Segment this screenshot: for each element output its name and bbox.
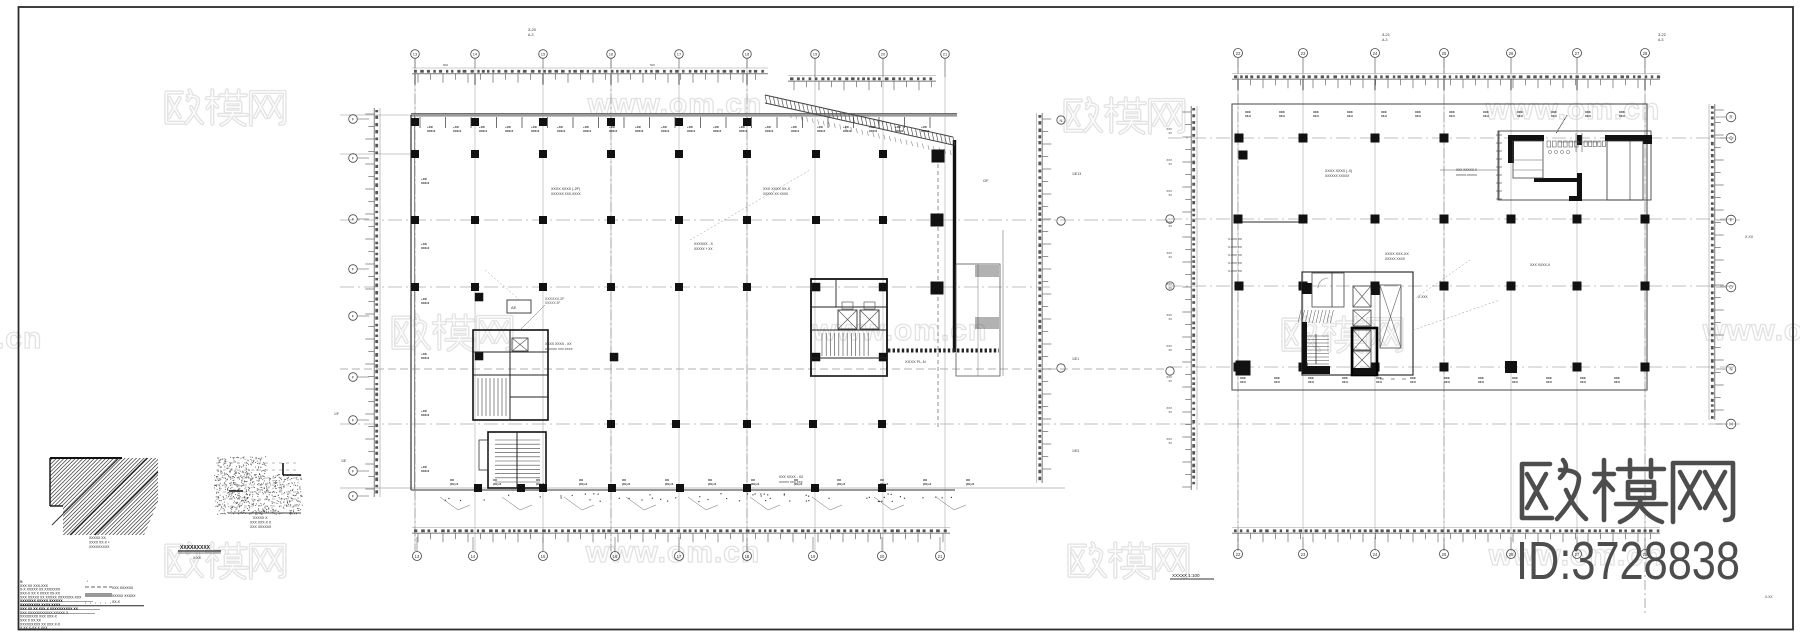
svg-text:XXX.X: XXX.X (421, 356, 429, 360)
svg-text:14: 14 (473, 52, 478, 57)
svg-text:XXX.X: XXX.X (895, 129, 903, 133)
svg-text:XX: XX (1169, 286, 1173, 290)
svg-text:XXX.X: XXX.X (557, 129, 565, 133)
svg-text:15: 15 (541, 554, 546, 559)
svg-text:XX: XX (1169, 348, 1173, 352)
svg-text:(XL)-X: (XL)-X (837, 482, 845, 486)
svg-text:X-XXX XX: X-XXX XX (1228, 245, 1242, 249)
svg-text:XXX.X: XXX.X (687, 129, 695, 133)
svg-text:XXX.X: XXX.X (421, 246, 429, 250)
svg-text:(XL)-X: (XL)-X (923, 482, 931, 486)
svg-text:XXX: XXX (1614, 376, 1620, 380)
svg-text:M: M (1729, 422, 1733, 427)
svg-text:1/E1: 1/E1 (1072, 357, 1079, 361)
svg-text:XXXXX X: XXXXX X (253, 516, 268, 520)
svg-text:(XL)-X: (XL)-X (622, 482, 630, 486)
svg-text:XX: XX (1169, 379, 1173, 383)
svg-text:(XL)-X: (XL)-X (536, 482, 544, 486)
svg-text:16: 16 (609, 52, 614, 57)
svg-text:XX: XX (1169, 255, 1173, 259)
svg-text:XX.X: XX.X (1444, 380, 1450, 384)
svg-text:3-20: 3-20 (528, 27, 537, 32)
svg-text:(XL)-X: (XL)-X (751, 482, 759, 486)
svg-text:XXX.X: XXX.X (505, 129, 513, 133)
svg-text:X-XXX XX: X-XXX XX (1228, 237, 1242, 241)
svg-text:XXXXX-XXXXX: XXXXX-XXXXX (1456, 173, 1477, 177)
svg-text:X-XXX XX: X-XXX XX (1228, 261, 1242, 265)
svg-text:16: 16 (613, 554, 618, 559)
svg-text:XX.X: XX.X (1342, 380, 1348, 384)
svg-text:XXX.X: XXX.X (583, 129, 591, 133)
svg-text:18: 18 (745, 52, 750, 57)
svg-text:XXX: XXX (1512, 376, 1518, 380)
svg-text:XX: XX (1169, 224, 1173, 228)
svg-text:XXX: XXX (1580, 376, 1586, 380)
svg-text:(XL)-X: (XL)-X (665, 482, 673, 486)
svg-text:XX.X: XX.X (1619, 114, 1625, 118)
svg-text:XXX: XXX (1619, 110, 1625, 114)
svg-text:XXXXXX XXXXX: XXXXXX XXXXX (1325, 174, 1350, 178)
svg-text:XXX: XXX (1166, 406, 1172, 410)
svg-text:XXX: XXX (1166, 282, 1172, 286)
svg-text:21: 21 (938, 554, 943, 559)
svg-text:(XL)-X: (XL)-X (708, 482, 716, 486)
svg-text:XXX: XXX (1376, 376, 1382, 380)
svg-text:XXXXX 2F: XXXXX 2F (545, 301, 560, 305)
svg-text:XXX.X: XXX.X (817, 129, 825, 133)
svg-text:XXX: XXX (1274, 376, 1280, 380)
svg-text:AE: AE (511, 305, 517, 310)
svg-text:3-22: 3-22 (1658, 32, 1667, 37)
svg-text:20: 20 (880, 554, 885, 559)
svg-text:17: 17 (677, 52, 682, 57)
svg-text:X-XXX XX: X-XXX XX (1228, 269, 1242, 273)
svg-text:X XX X-XX X XXX: X XX X-XX X XXX (20, 626, 48, 630)
svg-text:XXX.X: XXX.X (739, 129, 747, 133)
svg-text:XX.X: XX.X (1313, 114, 1319, 118)
svg-text:1/F: 1/F (334, 412, 339, 416)
svg-text:XXX: XXX (1166, 158, 1172, 162)
svg-text:XXX: XXX (1381, 110, 1387, 114)
svg-text:XXXXXXXXX: XXXXXXXXX (89, 545, 110, 549)
svg-text:XXX: XXX (1415, 110, 1421, 114)
svg-text:XXX.X: XXX.X (421, 469, 429, 473)
svg-text:XXXXXXXXX: XXXXXXXXX (180, 545, 211, 551)
svg-text:XXX: XXX (1483, 110, 1489, 114)
svg-text:XX: XX (1391, 377, 1395, 381)
svg-text:XXX.X: XXX.X (713, 129, 721, 133)
svg-text:X-XX: X-XX (1765, 595, 1773, 599)
svg-text:XXX: XXX (1449, 110, 1455, 114)
svg-text:XXX: XXX (1410, 376, 1416, 380)
svg-text:GF: GF (983, 178, 989, 183)
svg-text:XXXXX + XX: XXXXX + XX (694, 247, 713, 251)
svg-text:XXX: XXX (1279, 110, 1285, 114)
svg-text:XXX: XXX (1166, 220, 1172, 224)
svg-text:XXX: XXX (1166, 127, 1172, 131)
svg-text:XXX: XXX (1478, 376, 1484, 380)
svg-text:XXXX XXXX - XX: XXXX XXXX - XX (545, 342, 572, 346)
svg-text:XXXXXX XXX XXXX: XXXXXX XXX XXXX (545, 347, 573, 351)
svg-text:XX.X: XX.X (1279, 114, 1285, 118)
svg-text:XXX: XXX (1166, 313, 1172, 317)
svg-text:22: 22 (1236, 552, 1241, 557)
svg-text:500: 500 (650, 63, 655, 67)
svg-text:13: 13 (415, 554, 420, 559)
svg-text:17: 17 (677, 554, 682, 559)
svg-text:N: N (1060, 118, 1063, 123)
svg-text:XXX.X: XXX.X (791, 129, 799, 133)
svg-text:XXX: XXX (1308, 376, 1314, 380)
svg-text:www.om.cn: www.om.cn (1702, 314, 1800, 347)
svg-text:XX.X: XX.X (1483, 114, 1489, 118)
svg-text:X-XX: X-XX (1745, 235, 1754, 239)
svg-text:XXXX XXXX (-X): XXXX XXXX (-X) (1325, 169, 1352, 173)
svg-text:XXXX XXXX (-2F): XXXX XXXX (-2F) (551, 187, 580, 191)
svg-text:N: N (1729, 367, 1732, 372)
svg-text:(XL)-X: (XL)-X (450, 482, 458, 486)
svg-text:XXX: XXX (1166, 189, 1172, 193)
svg-text:XXXX XXX-XX: XXXX XXX-XX (1385, 252, 1409, 256)
svg-text:23: 23 (1301, 51, 1306, 56)
svg-text:▪: ▪ (21, 579, 22, 583)
svg-text:A-3: A-3 (528, 33, 534, 37)
svg-text:XX.X: XX.X (1614, 380, 1620, 384)
svg-text:ID:3728838: ID:3728838 (1516, 531, 1740, 591)
svg-text:XXXXX XXXX: XXXXX XXXX (1385, 257, 1406, 261)
svg-text:XX.X: XX.X (1585, 114, 1591, 118)
svg-text:XXX: XXX (1166, 437, 1172, 441)
svg-text:XXX.X: XXX.X (661, 129, 669, 133)
svg-text:XXXXX XXXXX: XXXXX XXXXX (112, 594, 136, 598)
svg-text:XXX.X: XXX.X (843, 129, 851, 133)
svg-text:19: 19 (813, 52, 818, 57)
svg-text:www.om.cn: www.om.cn (0, 322, 42, 355)
svg-text:XXX: XXX (1240, 376, 1246, 380)
svg-text:XXX.X: XXX.X (921, 129, 929, 133)
svg-text:A-3: A-3 (1658, 38, 1664, 42)
svg-text:XXXX XX-X +: XXXX XX-X + (89, 541, 110, 545)
svg-text:XXX: XXX (1166, 375, 1172, 379)
svg-text:13: 13 (413, 52, 418, 57)
svg-text:XX.X: XX.X (1551, 114, 1557, 118)
svg-text:A-3: A-3 (1382, 38, 1388, 42)
svg-text:XX: XX (1169, 317, 1173, 321)
svg-text:XXX: XXX (1342, 376, 1348, 380)
svg-text:XXX: XXX (1245, 110, 1251, 114)
svg-text:22: 22 (1236, 51, 1241, 56)
svg-text:1/E: 1/E (341, 459, 347, 463)
svg-text:XXX: XXX (1551, 110, 1557, 114)
svg-text:XXX.X: XXX.X (765, 129, 773, 133)
svg-text:XX: XX (1169, 162, 1173, 166)
svg-text:XX.X: XX.X (1512, 380, 1518, 384)
svg-text:XXX: XXX (1444, 376, 1450, 380)
svg-text:19: 19 (811, 554, 816, 559)
svg-text:XX.X: XX.X (1274, 380, 1280, 384)
svg-text:XXX.X: XXX.X (421, 301, 429, 305)
svg-text:XXX.X: XXX.X (421, 181, 429, 185)
svg-text:XXX: XXX (1585, 110, 1591, 114)
svg-text:XXX.X: XXX.X (635, 129, 643, 133)
svg-text:XXXXX XX XXXX: XXXXX XX XXXX (763, 192, 789, 196)
svg-text:XXX XXXX - XX: XXX XXXX - XX (779, 475, 804, 479)
svg-text:3-21: 3-21 (1382, 32, 1391, 37)
svg-text:1/E3: 1/E3 (1072, 449, 1079, 453)
svg-text:25: 25 (1442, 552, 1447, 557)
svg-text:XXX.X: XXX.X (479, 129, 487, 133)
svg-text:XX.X: XX.X (1381, 114, 1387, 118)
svg-text:XXX XXXX-X: XXX XXXX-X (1530, 263, 1551, 267)
svg-text:(XL)-X: (XL)-X (493, 482, 501, 486)
svg-text:XX: XX (1169, 131, 1173, 135)
svg-text:XX-X: XX-X (112, 600, 121, 604)
svg-text:R: R (1729, 115, 1732, 120)
svg-text:XXX.X: XXX.X (869, 129, 877, 133)
svg-text:26: 26 (1509, 552, 1514, 557)
svg-text:XXX XXXX XX-X: XXX XXXX XX-X (763, 187, 791, 191)
svg-text:XXX: XXX (1166, 251, 1172, 255)
svg-text:▪: ▪ (87, 579, 88, 583)
svg-text:XXX: XXX (1166, 344, 1172, 348)
svg-text:XXX: XXX (1313, 110, 1319, 114)
svg-text:XX.X: XX.X (1478, 380, 1484, 384)
svg-text:XX.X: XX.X (1410, 380, 1416, 384)
svg-text:27: 27 (1575, 51, 1580, 56)
svg-text:XX.X: XX.X (1376, 380, 1382, 384)
svg-text:21: 21 (943, 52, 948, 57)
svg-text:24: 24 (1373, 51, 1378, 56)
svg-text:X-XXX XX: X-XXX XX (1228, 253, 1242, 257)
svg-text:XXX: XXX (1517, 110, 1523, 114)
svg-text:24: 24 (1373, 552, 1378, 557)
svg-text:XXXXXX - X: XXXXXX - X (694, 242, 714, 246)
svg-text:XXX.X: XXX.X (453, 129, 461, 133)
svg-text:XXXX FL-N: XXXX FL-N (905, 359, 926, 364)
svg-text:26: 26 (1509, 51, 1514, 56)
svg-text:XX: XX (1402, 377, 1406, 381)
svg-text:XX.X: XX.X (1449, 114, 1455, 118)
svg-text:XX: XX (1169, 193, 1173, 197)
svg-text:XXXXX 1:100: XXXXX 1:100 (1172, 573, 1200, 578)
svg-text:XXXXX XX: XXXXX XX (89, 536, 107, 540)
svg-text:14: 14 (471, 554, 476, 559)
svg-text:XX.X: XX.X (1240, 380, 1246, 384)
svg-text:X:XX: X:XX (193, 556, 202, 560)
svg-text:(XL)-X: (XL)-X (579, 482, 587, 486)
svg-text:XX.X: XX.X (1347, 114, 1353, 118)
svg-text:XX: XX (1169, 441, 1173, 445)
svg-text:(XL)-X: (XL)-X (966, 482, 974, 486)
svg-text:XXX.X: XXX.X (421, 413, 429, 417)
svg-text:XX.X: XX.X (1245, 114, 1251, 118)
svg-text:XXX XXXXXX: XXX XXXXXX (250, 525, 272, 529)
svg-text:(XL)-X: (XL)-X (880, 482, 888, 486)
svg-text:25: 25 (1442, 51, 1447, 56)
svg-text:18: 18 (745, 554, 750, 559)
svg-text:500: 500 (443, 63, 448, 67)
svg-text:XX.X: XX.X (1415, 114, 1421, 118)
svg-text:XX.X: XX.X (1517, 114, 1523, 118)
svg-text:XX: XX (1169, 410, 1173, 414)
svg-text:1/E13: 1/E13 (1072, 172, 1081, 176)
svg-text:15: 15 (541, 52, 546, 57)
svg-text:XXX.X: XXX.X (427, 129, 435, 133)
svg-text:(XL)-X: (XL)-X (794, 482, 802, 486)
svg-text:28: 28 (1643, 51, 1648, 56)
svg-text:XXX.X: XXX.X (609, 129, 617, 133)
svg-text:X-XXX: X-XXX (1418, 295, 1428, 299)
svg-text:XXX XXXXXX: XXX XXXXXX (112, 586, 134, 590)
svg-text:XX.X: XX.X (1308, 380, 1314, 384)
svg-text:23: 23 (1301, 552, 1306, 557)
svg-text:XXX XXX-X X: XXX XXX-X X (250, 521, 272, 525)
svg-text:XXXXXX XXX-XXXX: XXXXXX XXX-XXXX (551, 192, 581, 196)
svg-text:20: 20 (881, 52, 886, 57)
svg-text:P: P (1730, 218, 1733, 223)
svg-text:XX.X: XX.X (1546, 380, 1552, 384)
svg-text:XXX: XXX (1347, 110, 1353, 114)
svg-text:XX.X: XX.X (1580, 380, 1586, 384)
svg-text:XXX.X: XXX.X (531, 129, 539, 133)
svg-text:XXX: XXX (1546, 376, 1552, 380)
